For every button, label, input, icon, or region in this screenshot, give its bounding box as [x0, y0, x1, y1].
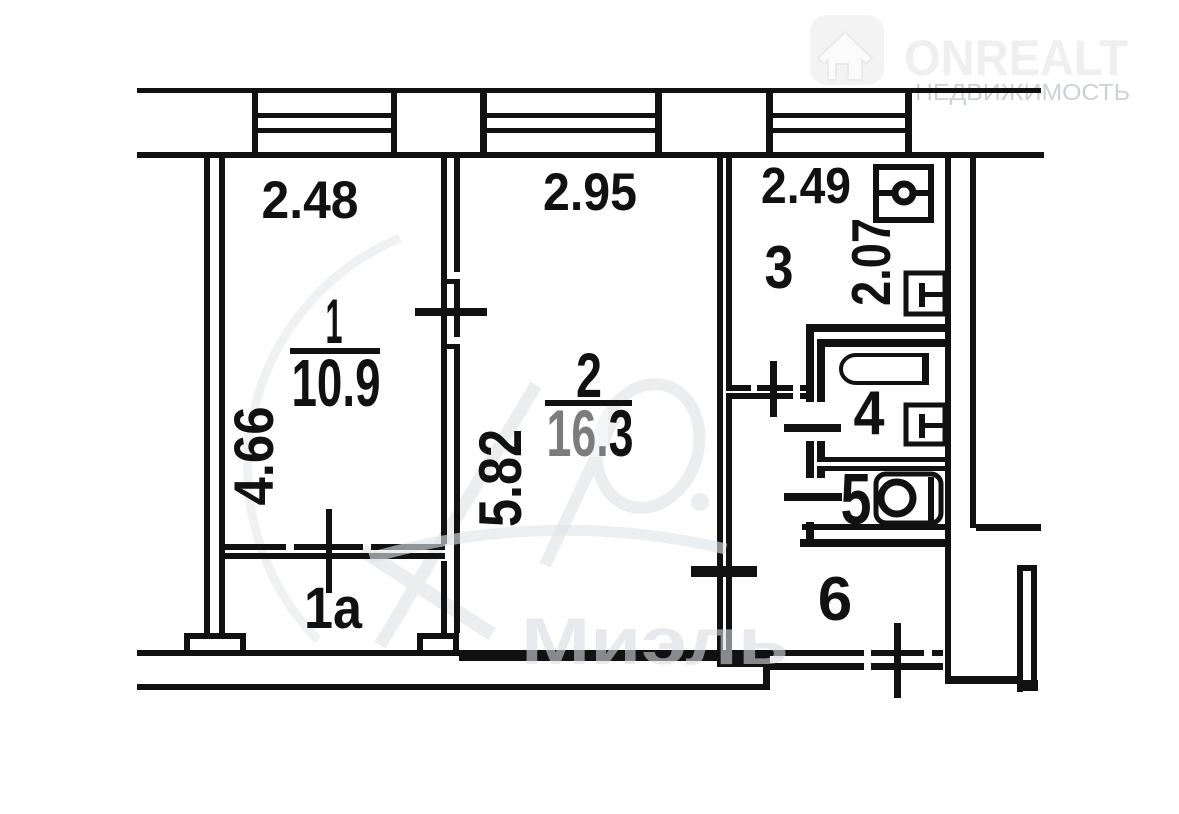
svg-text:4: 4 [854, 379, 885, 448]
svg-text:10.9: 10.9 [292, 346, 381, 421]
svg-text:2.07: 2.07 [840, 218, 902, 306]
svg-text:1а: 1а [304, 576, 363, 641]
svg-text:2.49: 2.49 [761, 157, 851, 214]
svg-text:Миэль: Миэль [521, 604, 789, 678]
svg-text:4.66: 4.66 [222, 407, 285, 506]
svg-text:ONREALT: ONREALT [904, 30, 1128, 86]
svg-text:3: 3 [765, 234, 794, 301]
svg-text:5.82: 5.82 [467, 429, 534, 527]
svg-text:6: 6 [818, 565, 852, 634]
svg-text:2.48: 2.48 [262, 171, 359, 230]
svg-text:5: 5 [841, 460, 872, 540]
svg-text:2.95: 2.95 [543, 163, 637, 222]
